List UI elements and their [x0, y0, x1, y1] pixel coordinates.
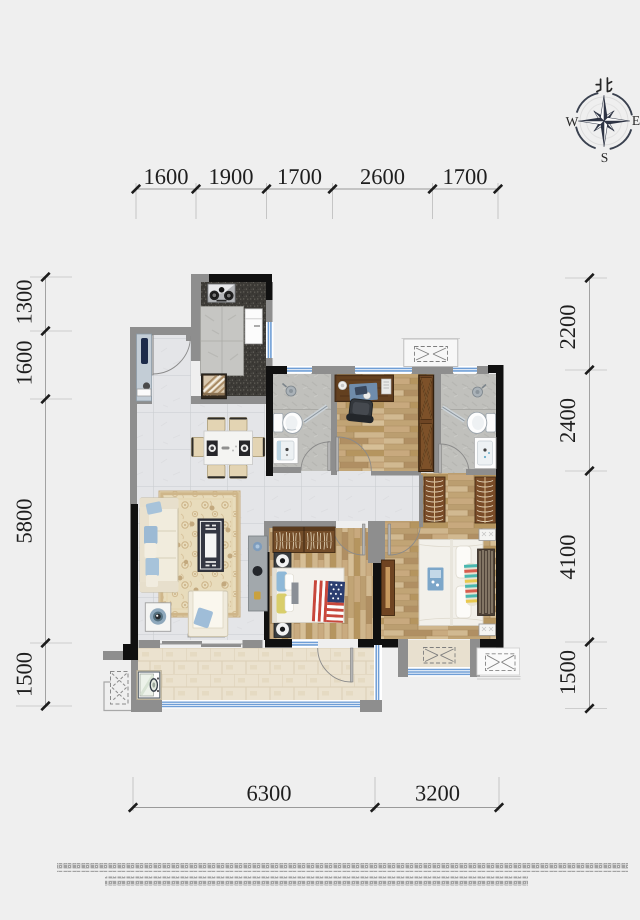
- svg-text:2600: 2600: [360, 164, 405, 189]
- svg-text:1500: 1500: [555, 650, 580, 695]
- svg-text:1700: 1700: [277, 164, 322, 189]
- svg-text:1900: 1900: [209, 164, 254, 189]
- svg-text:W: W: [566, 114, 579, 129]
- svg-text:4100: 4100: [555, 535, 580, 580]
- svg-text:6300: 6300: [247, 781, 292, 806]
- svg-text:S: S: [601, 150, 609, 165]
- svg-text:1600: 1600: [144, 164, 189, 189]
- svg-text:1700: 1700: [443, 164, 488, 189]
- svg-text:1500: 1500: [12, 652, 37, 697]
- svg-text:2200: 2200: [555, 305, 580, 350]
- svg-text:2400: 2400: [555, 398, 580, 443]
- svg-text:3200: 3200: [415, 781, 460, 806]
- svg-text:5800: 5800: [12, 499, 37, 544]
- svg-text:1300: 1300: [12, 280, 37, 325]
- svg-text:1600: 1600: [12, 341, 37, 386]
- svg-text:E: E: [632, 113, 640, 128]
